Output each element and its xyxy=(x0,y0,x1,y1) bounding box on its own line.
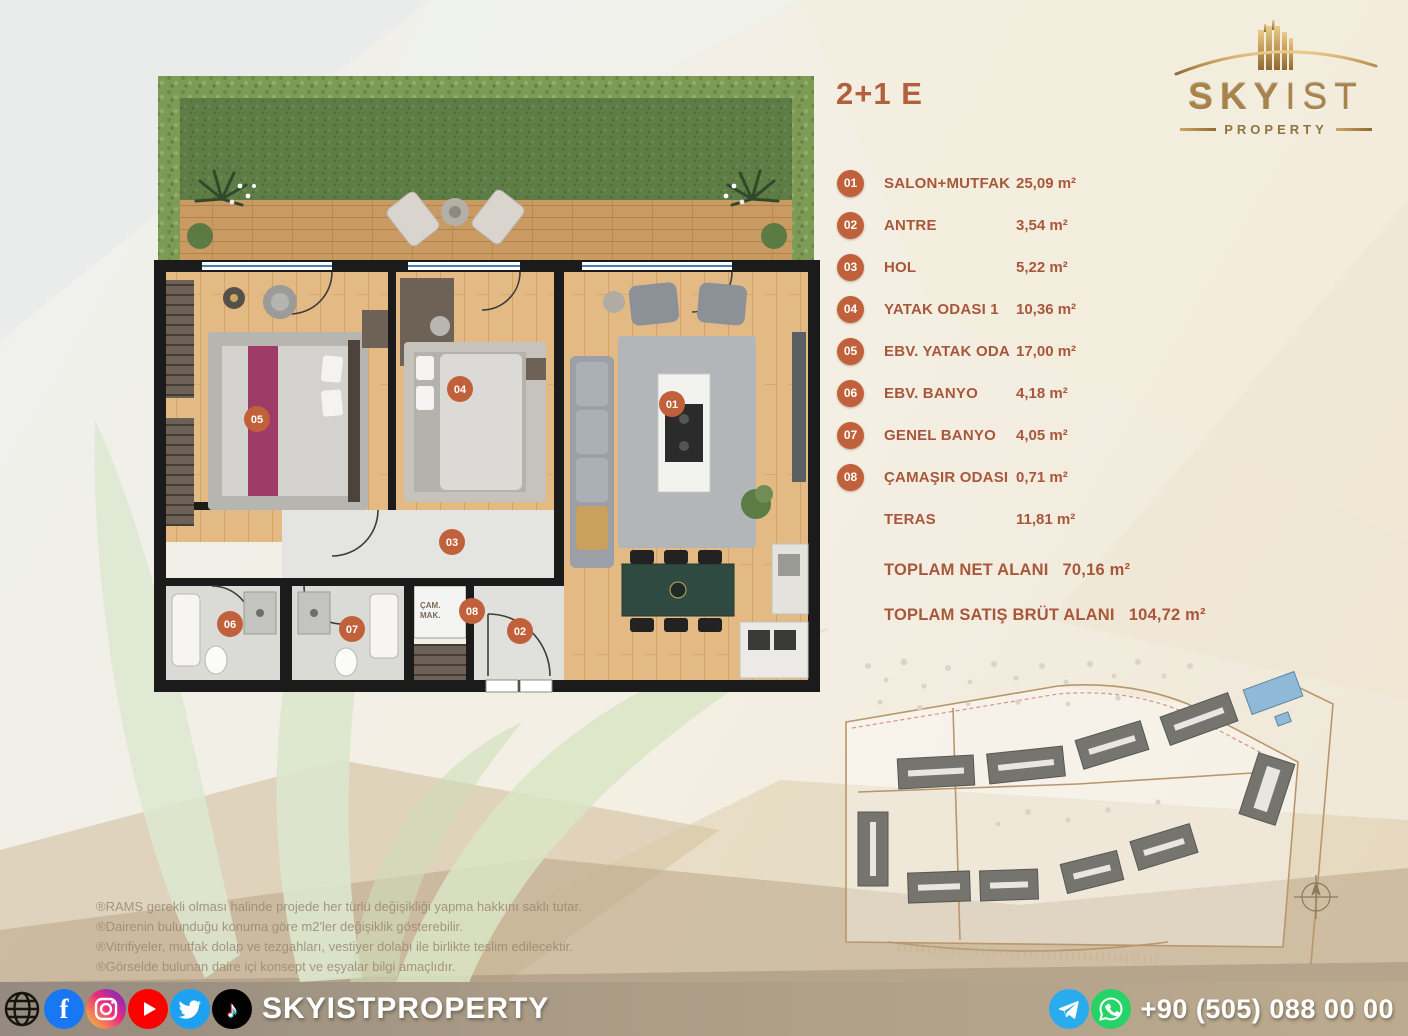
room-label: HOL xyxy=(884,259,1016,276)
svg-text:03: 03 xyxy=(446,537,458,549)
logo-line-left xyxy=(1180,128,1216,131)
room-label: EBV. YATAK ODA xyxy=(884,343,1016,360)
svg-text:02: 02 xyxy=(514,626,526,638)
room-area: 11,81 m² xyxy=(1016,511,1075,528)
room-area: 4,05 m² xyxy=(1016,427,1068,444)
room-area: 5,22 m² xyxy=(1016,259,1068,276)
badge-02: 02 xyxy=(507,618,533,644)
room-number-badge: 04 xyxy=(837,296,864,323)
room-number-badge: 07 xyxy=(837,422,864,449)
disclaimer-line: ®RAMS gerekli olması halinde projede her… xyxy=(96,897,616,917)
room-row-07: 07 GENEL BANYO 4,05 m² xyxy=(837,414,1167,456)
room-area: 10,36 m² xyxy=(1016,301,1076,318)
footer-phone-number[interactable]: +90 (505) 088 00 00 xyxy=(1141,994,1394,1025)
total-net-row: TOPLAM NET ALANI 70,16 m² xyxy=(884,561,1244,580)
room-row-03: 03 HOL 5,22 m² xyxy=(837,246,1167,288)
svg-text:05: 05 xyxy=(251,414,263,426)
logo-building-icon xyxy=(1168,6,1384,78)
footer-contact-group: +90 (505) 088 00 00 xyxy=(1047,989,1394,1029)
room-row-08: 08 ÇAMAŞIR ODASI 0,71 m² xyxy=(837,456,1167,498)
logo-line-right xyxy=(1336,128,1372,131)
disclaimer-line: ®Vitrifiyeler, mutfak dolap ve tezgahlar… xyxy=(96,937,616,957)
tiktok-glyph: ♪ xyxy=(226,998,238,1021)
room-label: TERAS xyxy=(884,511,1016,528)
room-number-badge: 08 xyxy=(837,464,864,491)
laundry-room-label: ÇAM. MAK. xyxy=(420,601,440,620)
room-label: ÇAMAŞIR ODASI xyxy=(884,469,1016,486)
svg-text:ÇAM.: ÇAM. xyxy=(420,601,440,610)
svg-text:04: 04 xyxy=(454,384,467,396)
facebook-icon[interactable]: f xyxy=(44,989,84,1029)
room-area: 17,00 m² xyxy=(1016,343,1076,360)
compass-icon xyxy=(1294,875,1338,919)
highlighted-building xyxy=(1243,672,1303,727)
total-net-value: 70,16 m² xyxy=(1063,561,1131,580)
logo-subtitle-row: PROPERTY xyxy=(1168,122,1384,137)
terrace-garden xyxy=(158,76,814,270)
svg-text:01: 01 xyxy=(666,399,678,411)
badge-04: 04 xyxy=(447,376,473,402)
room-row-05: 05 EBV. YATAK ODA 17,00 m² xyxy=(837,330,1167,372)
room-area: 0,71 m² xyxy=(1016,469,1068,486)
total-gross-value: 104,72 m² xyxy=(1129,606,1206,625)
website-globe-icon[interactable] xyxy=(2,989,42,1029)
facebook-glyph: f xyxy=(60,996,69,1023)
room-area: 4,18 m² xyxy=(1016,385,1068,402)
footer-brand-text: SKYISTPROPERTY xyxy=(262,992,549,1026)
logo-subtitle: PROPERTY xyxy=(1224,122,1328,137)
logo-text-light: IST xyxy=(1285,76,1364,117)
total-gross-row: TOPLAM SATIŞ BRÜT ALANI 104,72 m² xyxy=(884,606,1244,625)
room-label: ANTRE xyxy=(884,217,1016,234)
disclaimer-line: ®Görselde bulunan daire içi konsept ve e… xyxy=(96,957,616,977)
room-label: GENEL BANYO xyxy=(884,427,1016,444)
svg-text:08: 08 xyxy=(466,606,478,618)
disclaimer-block: ®RAMS gerekli olması halinde projede her… xyxy=(96,897,616,977)
room-area: 3,54 m² xyxy=(1016,217,1068,234)
telegram-icon[interactable] xyxy=(1049,989,1089,1029)
svg-text:MAK.: MAK. xyxy=(420,611,440,620)
totals-block: TOPLAM NET ALANI 70,16 m² TOPLAM SATIŞ B… xyxy=(884,561,1244,651)
footer-bar: f ♪ SKYISTPROPERTY +90 (505) 088 00 00 xyxy=(0,982,1408,1036)
bush-left xyxy=(187,223,213,249)
logo-wordmark: SKYIST xyxy=(1168,78,1384,115)
svg-text:07: 07 xyxy=(346,624,358,636)
room-number-badge: 05 xyxy=(837,338,864,365)
room-row-02: 02 ANTRE 3,54 m² xyxy=(837,204,1167,246)
room-number-badge: 01 xyxy=(837,170,864,197)
svg-text:06: 06 xyxy=(224,619,236,631)
room-area: 25,09 m² xyxy=(1016,175,1076,192)
parking-row xyxy=(898,947,1158,960)
total-gross-label: TOPLAM SATIŞ BRÜT ALANI xyxy=(884,606,1115,625)
room-row-06: 06 EBV. BANYO 4,18 m² xyxy=(837,372,1167,414)
room-row-teras: TERAS 11,81 m² xyxy=(837,498,1167,540)
unit-type-title: 2+1 E xyxy=(836,76,923,112)
terrace-windows xyxy=(202,262,732,270)
bush-right xyxy=(761,223,787,249)
floor-plan: ÇAM. MAK. 01 02 03 04 05 06 07 08 xyxy=(152,74,822,698)
brochure-canvas: ÇAM. MAK. 01 02 03 04 05 06 07 08 xyxy=(0,0,1408,1036)
badge-01: 01 xyxy=(659,391,685,417)
room-label: YATAK ODASI 1 xyxy=(884,301,1016,318)
logo-text-bold: SKY xyxy=(1188,76,1285,117)
room-label: SALON+MUTFAK xyxy=(884,175,1016,192)
badge-06: 06 xyxy=(217,611,243,637)
room-row-01: 01 SALON+MUTFAK 25,09 m² xyxy=(837,162,1167,204)
room-number-badge: 02 xyxy=(837,212,864,239)
total-net-label: TOPLAM NET ALANI xyxy=(884,561,1049,580)
whatsapp-icon[interactable] xyxy=(1091,989,1131,1029)
badge-05: 05 xyxy=(244,406,270,432)
instagram-icon[interactable] xyxy=(86,989,126,1029)
room-number-badge: 06 xyxy=(837,380,864,407)
room-number-badge: 03 xyxy=(837,254,864,281)
room-label: EBV. BANYO xyxy=(884,385,1016,402)
badge-08: 08 xyxy=(459,598,485,624)
room-row-04: 04 YATAK ODASI 1 10,36 m² xyxy=(837,288,1167,330)
site-plan-map xyxy=(828,642,1408,982)
youtube-icon[interactable] xyxy=(128,989,168,1029)
tiktok-icon[interactable]: ♪ xyxy=(212,989,252,1029)
badge-03: 03 xyxy=(439,529,465,555)
badge-07: 07 xyxy=(339,616,365,642)
company-logo: SKYIST PROPERTY xyxy=(1168,6,1384,137)
room-list: 01 SALON+MUTFAK 25,09 m² 02 ANTRE 3,54 m… xyxy=(837,162,1167,540)
twitter-icon[interactable] xyxy=(170,989,210,1029)
disclaimer-line: ®Dairenin bulunduğu konuma göre m2'ler d… xyxy=(96,917,616,937)
